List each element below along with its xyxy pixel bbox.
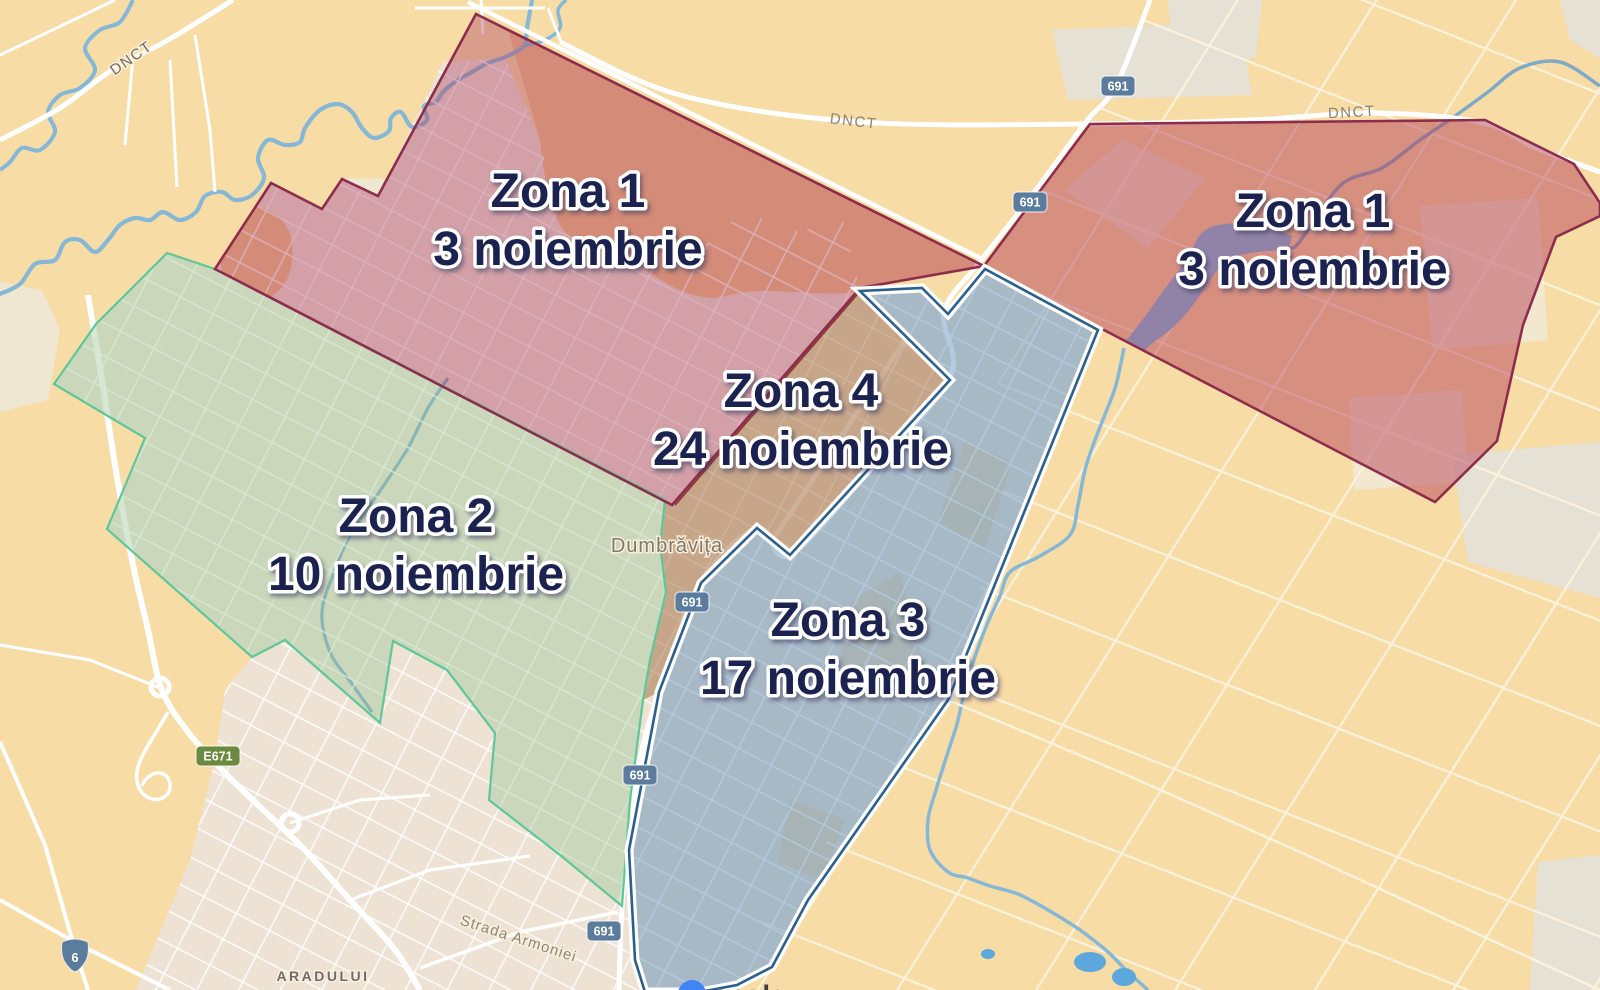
svg-text:691: 691 (630, 769, 651, 783)
svg-text:691: 691 (682, 596, 703, 610)
svg-text:691: 691 (1108, 80, 1129, 94)
svg-text:DNCT: DNCT (1328, 103, 1376, 122)
svg-text:oogle: oogle (713, 980, 785, 990)
svg-text:691: 691 (1020, 196, 1041, 210)
svg-text:17 noiembrie: 17 noiembrie (700, 652, 996, 705)
svg-text:Zona 1: Zona 1 (1236, 185, 1391, 238)
svg-text:Zona 1: Zona 1 (491, 165, 646, 218)
svg-text:691: 691 (594, 925, 615, 939)
svg-text:6: 6 (71, 950, 78, 965)
svg-text:3 noiembrie: 3 noiembrie (433, 223, 702, 276)
svg-text:3 noiembrie: 3 noiembrie (1178, 243, 1447, 296)
svg-text:Zona 2: Zona 2 (339, 490, 494, 543)
svg-text:Dumbrăvița: Dumbrăvița (611, 535, 723, 557)
svg-text:10 noiembrie: 10 noiembrie (268, 548, 564, 601)
svg-text:ARADULUI: ARADULUI (276, 968, 369, 984)
svg-text:E671: E671 (203, 750, 232, 764)
svg-text:Zona 4: Zona 4 (724, 365, 879, 418)
svg-text:24 noiembrie: 24 noiembrie (653, 423, 949, 476)
svg-text:Zona 3: Zona 3 (771, 594, 926, 647)
